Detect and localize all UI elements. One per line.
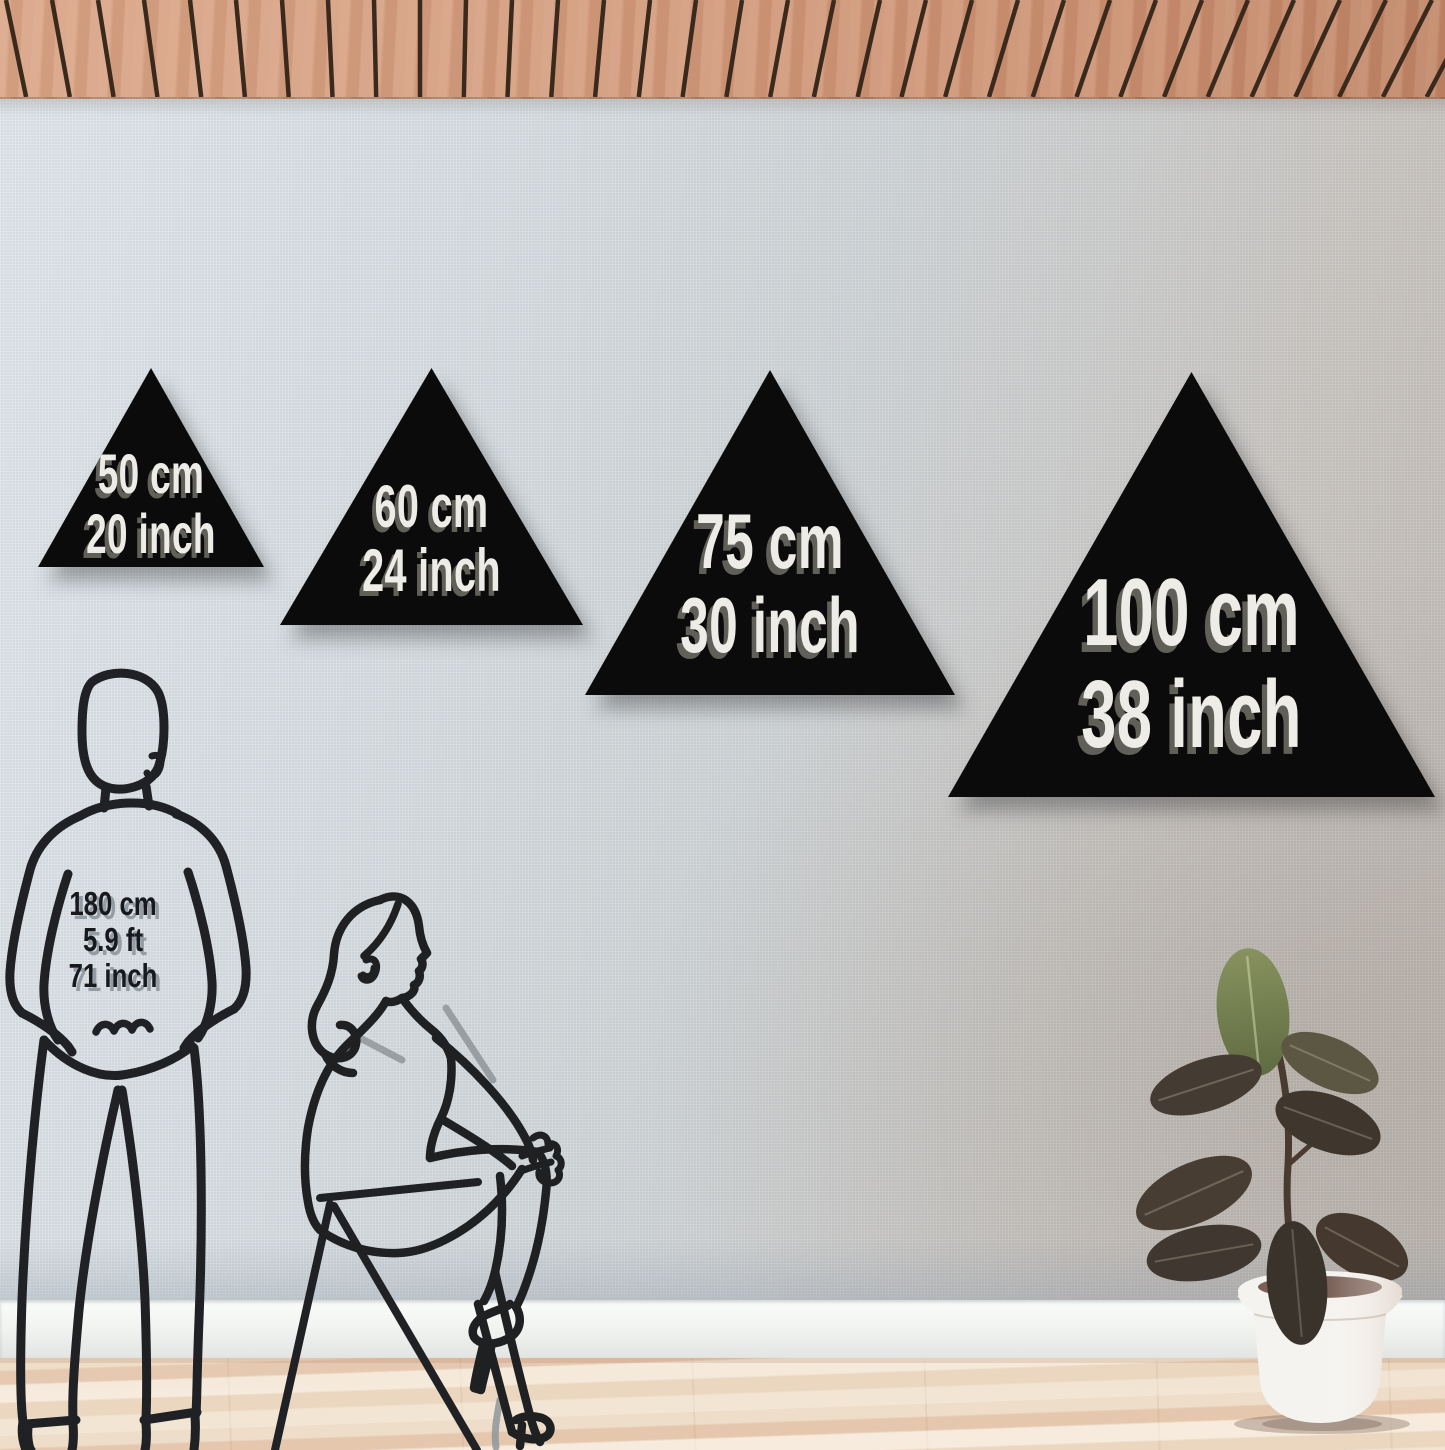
woman-ear [361,959,377,980]
person-height-label: 180 cm 5.9 ft 71 inch [56,886,170,994]
triangle-size-text: 60 cm 24 inch [332,475,532,625]
ceiling-shadow [0,99,1445,115]
size-label-inch: 24 inch [332,539,532,603]
man-collar [80,803,178,816]
triangle-shape: 100 cm 38 inch [948,372,1435,797]
person-height-ft: 5.9 ft [56,922,170,958]
person-height-cm: 180 cm [56,886,170,922]
triangle-shape: 50 cm 20 inch [38,368,264,567]
man-head [82,673,164,789]
size-triangle-75cm: 75 cm 30 inch [585,370,955,695]
woman-face [380,896,427,1002]
seated-woman-line-art [250,880,610,1450]
size-label-inch: 38 inch [1031,664,1352,767]
triangle-shape: 75 cm 30 inch [585,370,955,695]
man-right-side [188,872,212,1038]
size-label-cm: 75 cm [648,500,892,583]
size-triangle-60cm: 60 cm 24 inch [280,368,583,625]
man-hands [96,1022,150,1032]
size-label-cm: 50 cm [76,444,225,504]
man-left-leg-inner [73,1090,118,1420]
woman-shadow-stroke-back [360,1038,402,1060]
man-left-cuff [26,1420,76,1450]
man-ear [147,755,161,776]
ceiling-slat-lines [0,0,1445,97]
woman-chest [402,998,452,1158]
triangle-size-text: 100 cm 38 inch [1031,562,1352,797]
man-left-leg-outer [21,1040,44,1450]
person-height-inch: 71 inch [56,958,170,994]
size-label-inch: 20 inch [76,504,225,564]
size-guide-scene: 180 cm 5.9 ft 71 inch [0,0,1445,1450]
woman-skirt [320,1169,522,1253]
woman-hairline [364,904,398,956]
triangle-size-text: 50 cm 20 inch [76,444,225,567]
woman-arm-bottom [443,1120,512,1166]
size-triangle-100cm: 100 cm 38 inch [948,372,1435,797]
size-label-cm: 60 cm [332,475,532,539]
man-right-leg-inner [122,1090,147,1418]
potted-plant [1090,935,1445,1450]
triangle-size-text: 75 cm 30 inch [648,500,892,695]
woman-shadow-heel [495,1400,500,1447]
size-label-inch: 30 inch [648,584,892,667]
wood-slat-ceiling [0,0,1445,99]
size-label-cm: 100 cm [1031,562,1352,665]
triangle-shape: 60 cm 24 inch [280,368,583,625]
size-triangle-50cm: 50 cm 20 inch [38,368,264,567]
